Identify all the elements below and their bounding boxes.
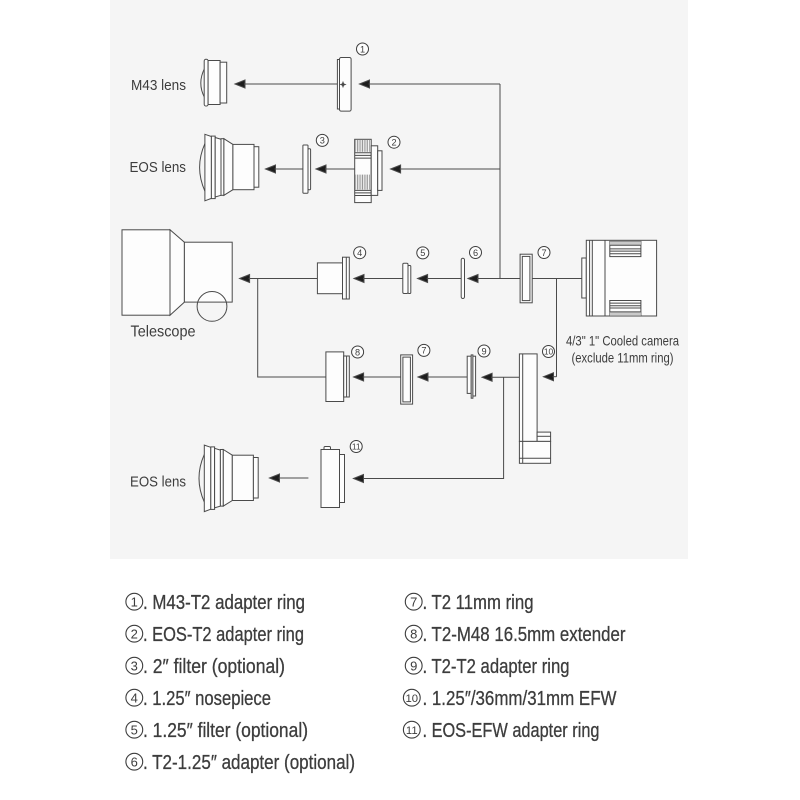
svg-text:EOS lens: EOS lens <box>130 475 186 491</box>
svg-text:. T2 11mm ring: . T2 11mm ring <box>423 592 534 614</box>
svg-text:. 1.25″/36mm/31mm EFW: . 1.25″/36mm/31mm EFW <box>423 688 617 710</box>
svg-text:11: 11 <box>406 725 418 737</box>
svg-text:6: 6 <box>473 248 478 258</box>
svg-text:4: 4 <box>131 690 138 705</box>
svg-text:2: 2 <box>131 626 138 641</box>
svg-text:. T2-M48 16.5mm extender: . T2-M48 16.5mm extender <box>423 624 626 646</box>
svg-text:2: 2 <box>391 137 396 147</box>
svg-text:9: 9 <box>481 346 486 356</box>
svg-text:. 1.25″ filter (optional): . 1.25″ filter (optional) <box>143 720 308 742</box>
svg-text:M43 lens: M43 lens <box>131 78 186 94</box>
svg-text:3: 3 <box>320 136 325 146</box>
svg-text:7: 7 <box>410 594 417 609</box>
svg-text:5: 5 <box>131 722 138 737</box>
svg-text:(exclude 11mm ring): (exclude 11mm ring) <box>572 350 674 366</box>
svg-text:7: 7 <box>541 248 546 258</box>
svg-text:10: 10 <box>406 693 419 705</box>
svg-text:1: 1 <box>360 44 365 54</box>
svg-text:. EOS-T2 adapter ring: . EOS-T2 adapter ring <box>143 624 304 646</box>
svg-text:8: 8 <box>355 347 360 357</box>
svg-text:9: 9 <box>410 658 417 673</box>
svg-text:. 2″ filter (optional): . 2″ filter (optional) <box>143 656 285 678</box>
svg-text:. EOS-EFW adapter ring: . EOS-EFW adapter ring <box>423 720 600 742</box>
svg-text:10: 10 <box>544 346 554 356</box>
svg-text:Telescope: Telescope <box>131 324 196 341</box>
svg-text:. M43-T2 adapter ring: . M43-T2 adapter ring <box>143 592 305 614</box>
svg-text:4/3" 1" Cooled camera: 4/3" 1" Cooled camera <box>566 333 679 349</box>
svg-text:5: 5 <box>420 248 425 258</box>
svg-text:. 1.25″ nosepiece: . 1.25″ nosepiece <box>143 688 271 710</box>
svg-text:. T2-T2 adapter ring: . T2-T2 adapter ring <box>423 656 570 678</box>
svg-text:. T2-1.25″ adapter (optional): . T2-1.25″ adapter (optional) <box>143 752 355 774</box>
svg-text:EOS lens: EOS lens <box>130 160 187 176</box>
svg-text:1: 1 <box>131 594 138 609</box>
svg-text:8: 8 <box>410 626 417 641</box>
svg-text:6: 6 <box>131 754 138 769</box>
svg-text:3: 3 <box>131 658 138 673</box>
svg-text:11: 11 <box>352 441 361 451</box>
svg-text:4: 4 <box>357 248 362 258</box>
svg-text:7: 7 <box>421 346 426 356</box>
